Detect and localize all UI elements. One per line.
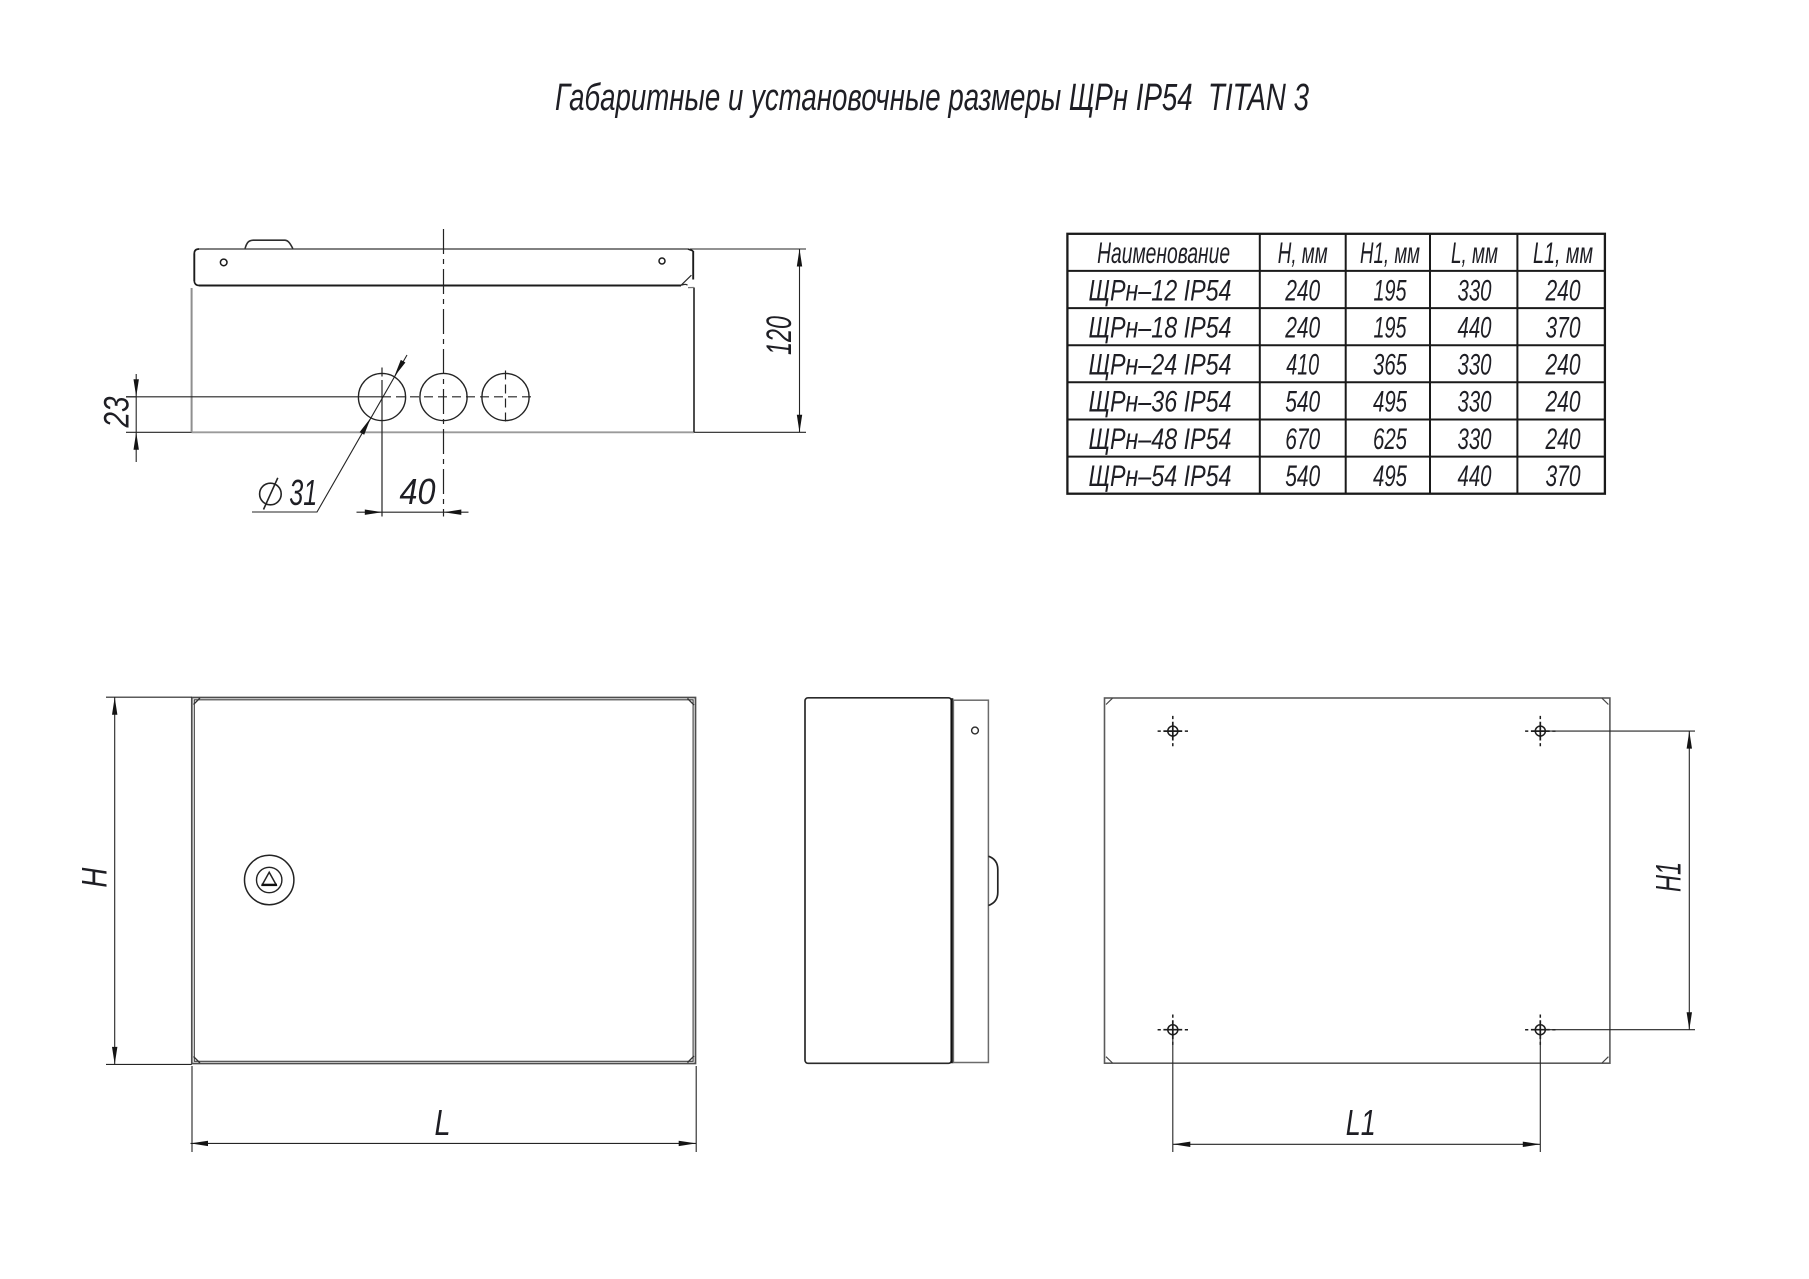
svg-text:330: 330 xyxy=(1458,386,1492,419)
svg-text:240: 240 xyxy=(1545,423,1581,456)
svg-text:625: 625 xyxy=(1373,423,1407,456)
svg-text:ЩРн–18 IP54: ЩРн–18 IP54 xyxy=(1089,312,1232,345)
svg-text:31: 31 xyxy=(289,472,317,513)
svg-text:ЩРн–36 IP54: ЩРн–36 IP54 xyxy=(1089,386,1232,419)
svg-text:440: 440 xyxy=(1458,460,1492,493)
svg-text:370: 370 xyxy=(1546,312,1581,345)
svg-text:330: 330 xyxy=(1458,423,1492,456)
svg-text:L1, мм: L1, мм xyxy=(1533,237,1593,270)
svg-text:495: 495 xyxy=(1373,460,1407,493)
svg-text:195: 195 xyxy=(1374,312,1407,345)
svg-text:L, мм: L, мм xyxy=(1451,237,1498,270)
svg-text:330: 330 xyxy=(1458,349,1492,382)
svg-text:240: 240 xyxy=(1545,349,1581,382)
svg-text:195: 195 xyxy=(1374,274,1407,307)
svg-text:ЩРн–12 IP54: ЩРн–12 IP54 xyxy=(1089,274,1232,307)
svg-text:H1: H1 xyxy=(1650,862,1689,892)
svg-text:240: 240 xyxy=(1545,274,1581,307)
svg-text:ЩРн–24 IP54: ЩРн–24 IP54 xyxy=(1089,349,1232,382)
svg-text:Н1, мм: Н1, мм xyxy=(1360,237,1420,270)
svg-text:540: 540 xyxy=(1285,460,1320,493)
svg-text:Н, мм: Н, мм xyxy=(1278,237,1328,270)
svg-text:L: L xyxy=(435,1102,451,1143)
svg-text:120: 120 xyxy=(760,316,799,355)
svg-text:410: 410 xyxy=(1286,349,1319,382)
svg-text:23: 23 xyxy=(97,396,136,428)
svg-text:Наименование: Наименование xyxy=(1097,237,1230,270)
svg-text:ЩРн–54 IP54: ЩРн–54 IP54 xyxy=(1089,460,1232,493)
svg-text:40: 40 xyxy=(400,471,436,512)
svg-text:240: 240 xyxy=(1284,312,1320,345)
svg-text:495: 495 xyxy=(1373,386,1407,419)
svg-text:L1: L1 xyxy=(1346,1102,1376,1143)
svg-text:ЩРн–48 IP54: ЩРн–48 IP54 xyxy=(1089,423,1232,456)
svg-text:330: 330 xyxy=(1458,274,1492,307)
svg-text:440: 440 xyxy=(1458,312,1492,345)
svg-text:H: H xyxy=(76,867,115,888)
svg-text:540: 540 xyxy=(1285,386,1320,419)
svg-text:370: 370 xyxy=(1546,460,1581,493)
svg-text:240: 240 xyxy=(1284,274,1320,307)
svg-text:365: 365 xyxy=(1373,349,1407,382)
svg-text:Габаритные и установочные разм: Габаритные и установочные размеры ЩРн IP… xyxy=(555,77,1309,119)
svg-text:670: 670 xyxy=(1285,423,1320,456)
svg-text:240: 240 xyxy=(1545,386,1581,419)
